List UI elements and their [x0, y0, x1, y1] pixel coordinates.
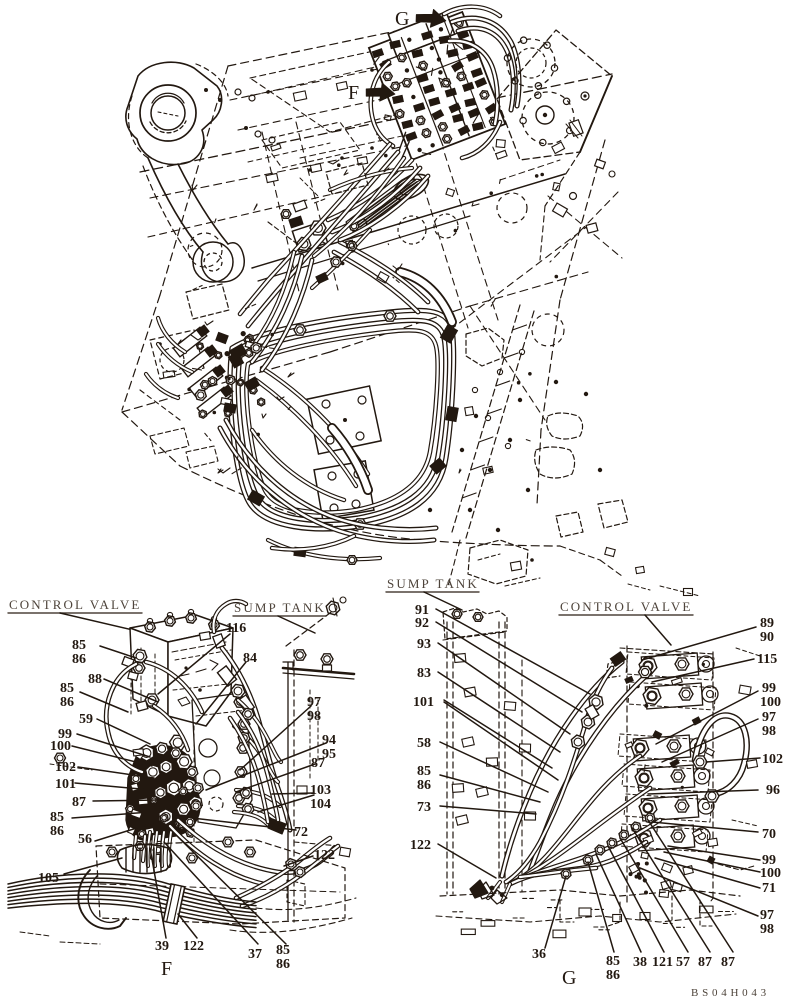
svg-text:90: 90 — [760, 630, 774, 645]
svg-text:101: 101 — [413, 695, 434, 710]
svg-text:85: 85 — [606, 954, 620, 969]
svg-text:89: 89 — [760, 616, 774, 631]
svg-text:102: 102 — [762, 752, 783, 767]
svg-text:94: 94 — [322, 733, 336, 748]
svg-text:115: 115 — [757, 652, 777, 667]
svg-text:SUMP TANK: SUMP TANK — [387, 576, 479, 591]
svg-text:G: G — [395, 8, 409, 30]
svg-text:105: 105 — [38, 871, 59, 886]
svg-text:73: 73 — [417, 800, 431, 815]
svg-text:100: 100 — [50, 739, 71, 754]
svg-text:85: 85 — [60, 681, 74, 696]
svg-text:104: 104 — [310, 797, 331, 812]
svg-text:92: 92 — [415, 616, 429, 631]
svg-text:116: 116 — [226, 621, 246, 636]
svg-text:83: 83 — [417, 666, 431, 681]
svg-text:F: F — [161, 958, 172, 980]
svg-text:122: 122 — [410, 838, 431, 853]
svg-text:72: 72 — [294, 825, 308, 840]
svg-text:70: 70 — [762, 827, 776, 842]
svg-text:71: 71 — [762, 881, 776, 896]
svg-text:85: 85 — [72, 638, 86, 653]
svg-text:87: 87 — [698, 955, 712, 970]
svg-text:98: 98 — [307, 709, 321, 724]
svg-text:87: 87 — [311, 756, 325, 771]
svg-text:93: 93 — [417, 637, 431, 652]
svg-text:97: 97 — [307, 695, 321, 710]
svg-text:CONTROL VALVE: CONTROL VALVE — [9, 597, 141, 612]
svg-text:39: 39 — [155, 939, 169, 954]
svg-text:122: 122 — [183, 939, 204, 954]
svg-text:102: 102 — [55, 760, 76, 775]
svg-text:86: 86 — [417, 778, 431, 793]
svg-text:F: F — [348, 82, 359, 104]
svg-text:SUMP TANK: SUMP TANK — [234, 600, 326, 615]
svg-text:86: 86 — [72, 652, 86, 667]
svg-text:100: 100 — [760, 866, 781, 881]
svg-text:88: 88 — [88, 672, 102, 687]
svg-text:98: 98 — [762, 724, 776, 739]
svg-text:86: 86 — [276, 957, 290, 972]
svg-text:G: G — [562, 967, 576, 989]
svg-text:84: 84 — [243, 651, 257, 666]
svg-text:36: 36 — [532, 947, 546, 962]
svg-text:85: 85 — [417, 764, 431, 779]
svg-text:86: 86 — [60, 695, 74, 710]
svg-text:85: 85 — [50, 810, 64, 825]
svg-text:37: 37 — [248, 947, 262, 962]
svg-text:56: 56 — [78, 832, 92, 847]
svg-text:96: 96 — [766, 783, 780, 798]
svg-text:86: 86 — [50, 824, 64, 839]
svg-text:86: 86 — [606, 968, 620, 983]
svg-text:98: 98 — [760, 922, 774, 937]
svg-text:B S 0 4 H 0 4 3: B S 0 4 H 0 4 3 — [691, 987, 767, 999]
svg-text:87: 87 — [721, 955, 735, 970]
svg-text:101: 101 — [55, 777, 76, 792]
svg-text:38: 38 — [633, 955, 647, 970]
svg-text:85: 85 — [276, 943, 290, 958]
svg-text:122: 122 — [314, 848, 335, 863]
svg-text:121: 121 — [652, 955, 673, 970]
svg-text:59: 59 — [79, 712, 93, 727]
svg-text:97: 97 — [760, 908, 774, 923]
svg-text:100: 100 — [760, 695, 781, 710]
svg-text:57: 57 — [676, 955, 690, 970]
svg-text:58: 58 — [417, 736, 431, 751]
svg-text:103: 103 — [310, 783, 331, 798]
svg-text:CONTROL VALVE: CONTROL VALVE — [560, 599, 692, 614]
svg-text:97: 97 — [762, 710, 776, 725]
svg-text:87: 87 — [72, 795, 86, 810]
svg-text:99: 99 — [762, 681, 776, 696]
